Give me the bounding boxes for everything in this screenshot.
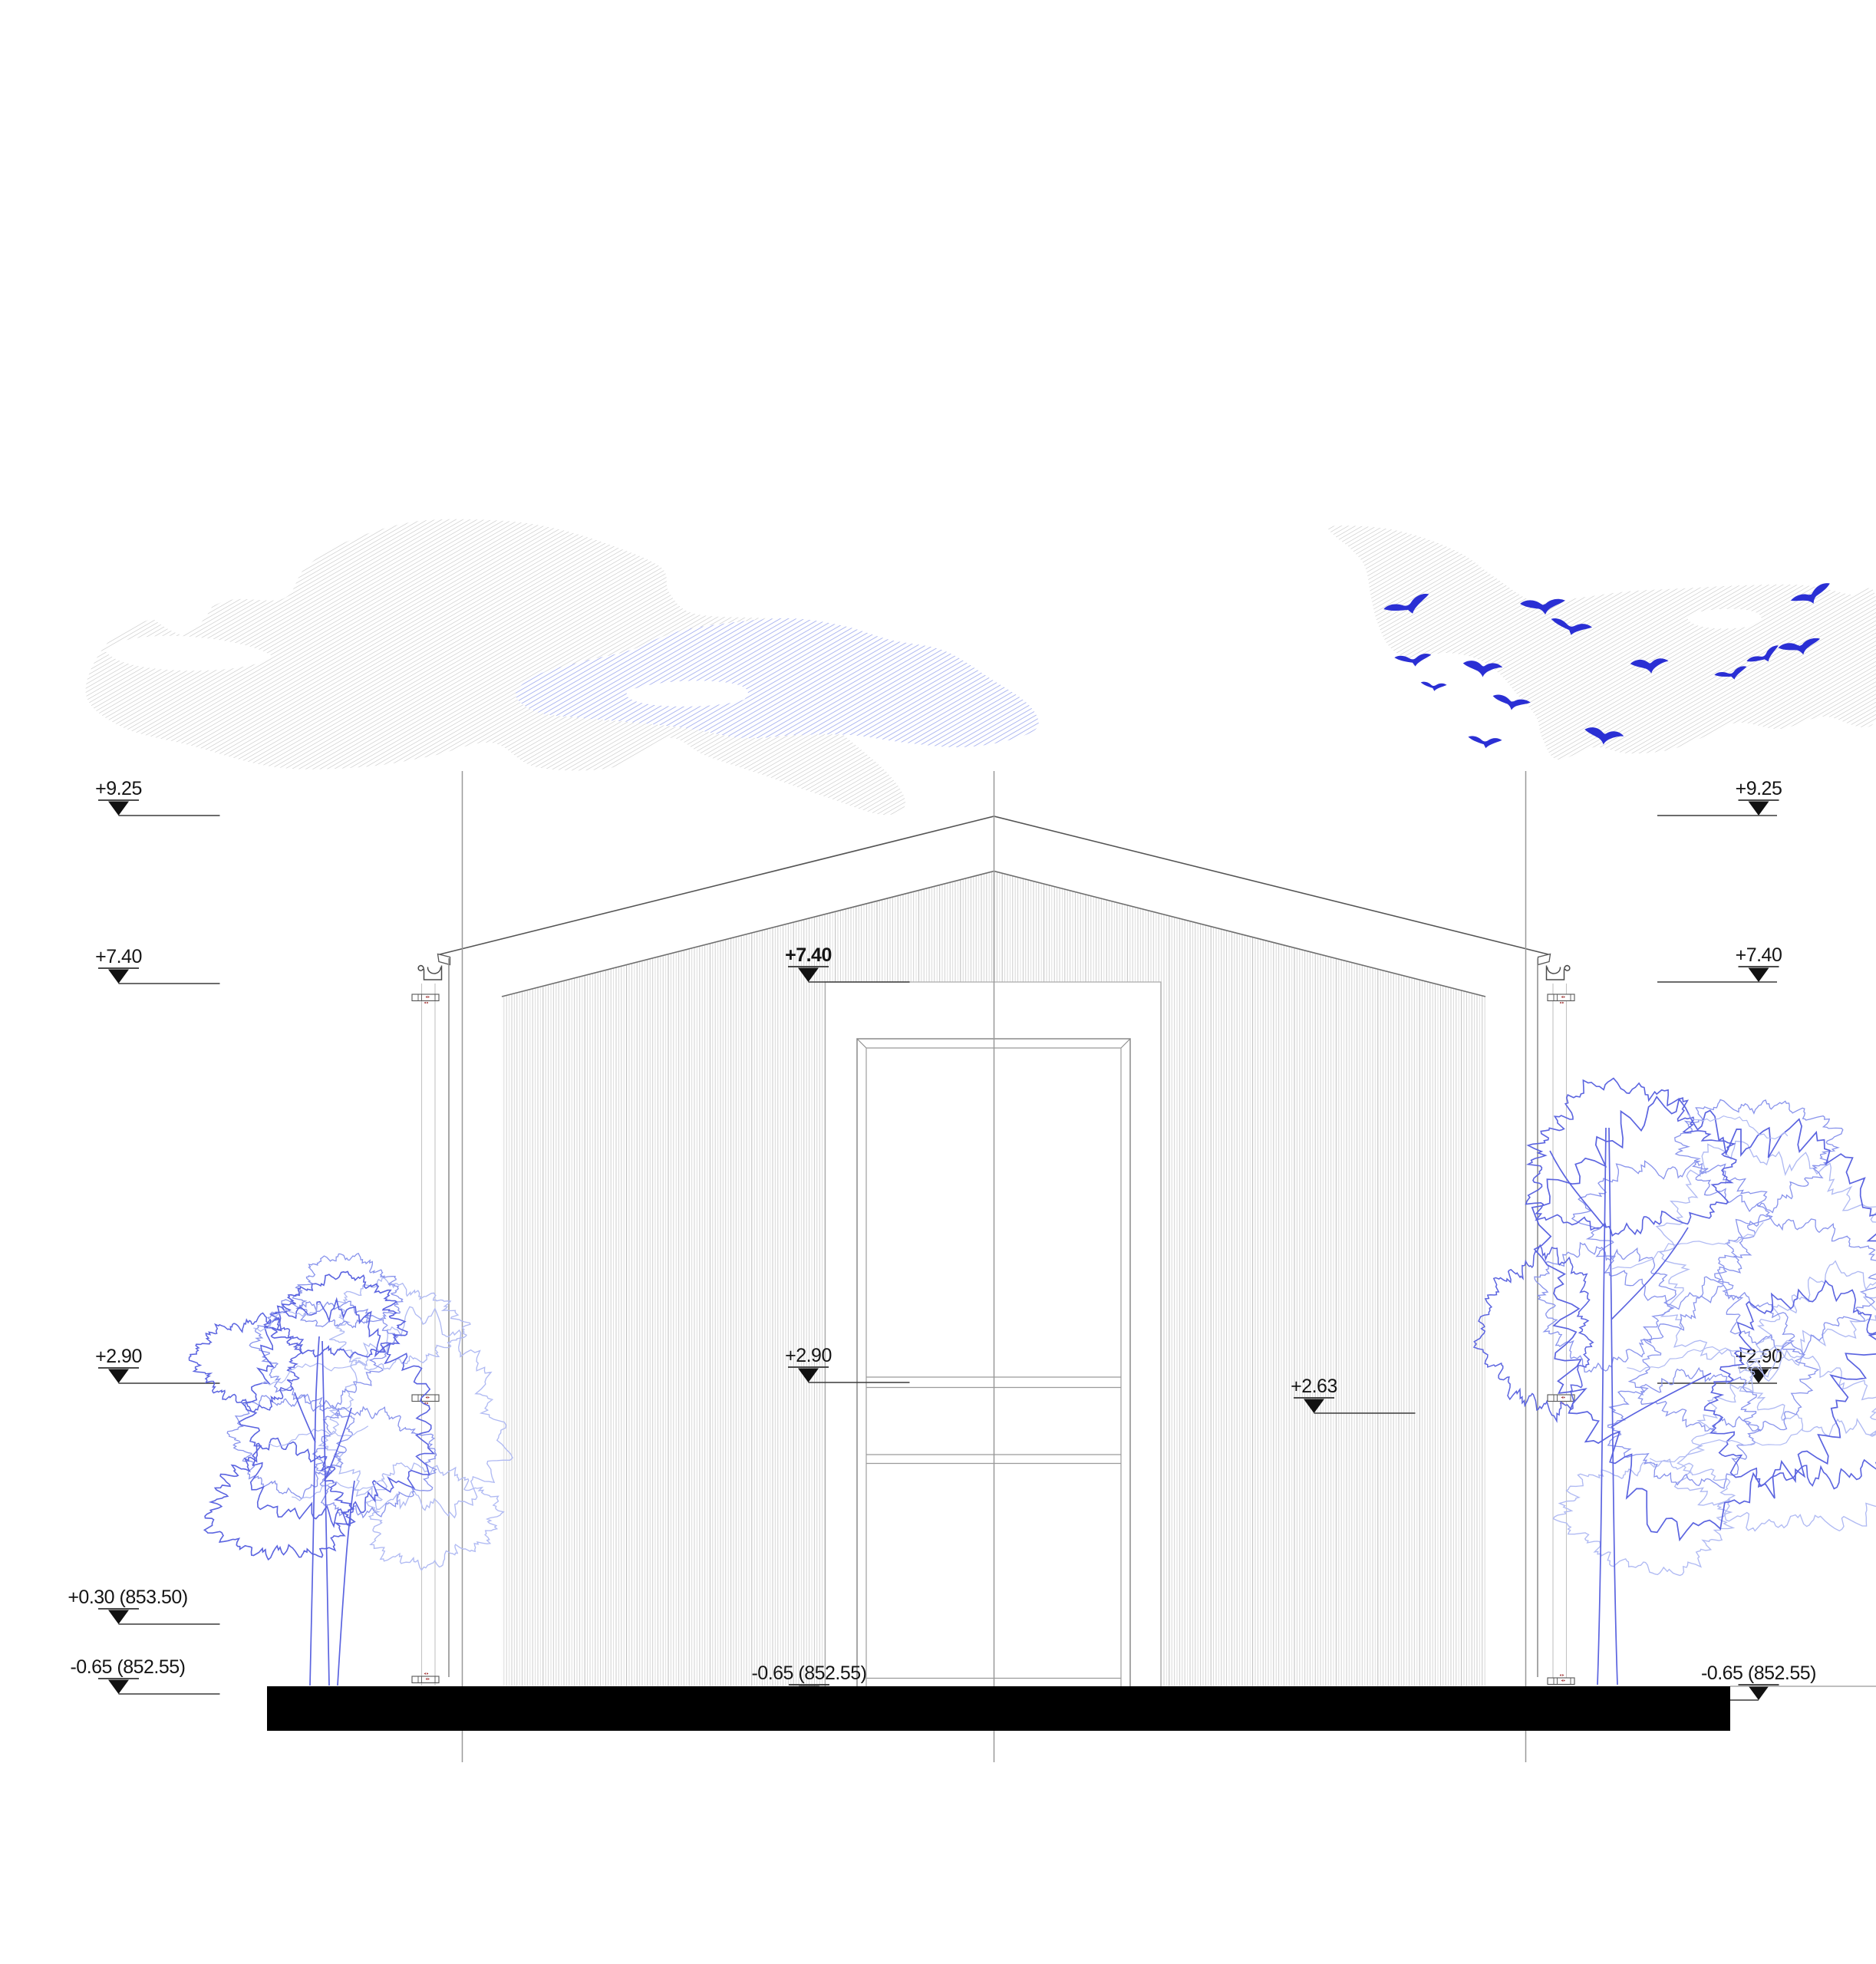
svg-text:+7.40: +7.40	[1736, 944, 1782, 966]
svg-text:-0.65 (852.55): -0.65 (852.55)	[751, 1662, 866, 1684]
svg-text:+9.25: +9.25	[95, 778, 142, 799]
svg-text:+2.90: +2.90	[785, 1345, 832, 1366]
svg-text:-0.65 (852.55): -0.65 (852.55)	[70, 1656, 185, 1678]
svg-text:+9.25: +9.25	[1736, 778, 1782, 799]
svg-text:+0.30 (853.50): +0.30 (853.50)	[68, 1587, 187, 1608]
svg-text:-0.65 (852.55): -0.65 (852.55)	[1701, 1662, 1816, 1684]
svg-text:+7.40: +7.40	[95, 946, 142, 967]
svg-text:+7.40: +7.40	[785, 944, 832, 966]
svg-text:+2.63: +2.63	[1291, 1376, 1337, 1397]
svg-text:+2.90: +2.90	[95, 1346, 142, 1367]
